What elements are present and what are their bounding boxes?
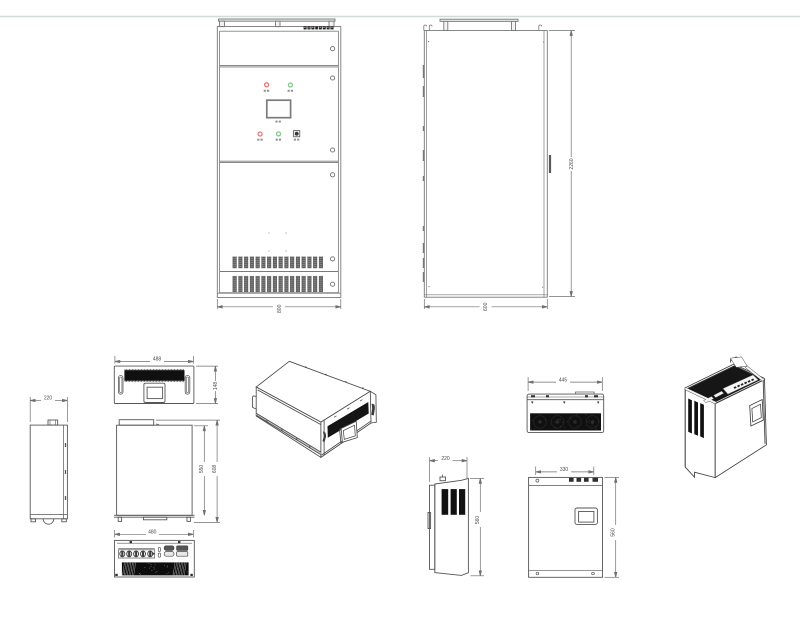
svg-text:560: 560 — [611, 528, 617, 537]
svg-text:148: 148 — [213, 382, 219, 391]
svg-text:600: 600 — [483, 302, 489, 311]
svg-text:220: 220 — [44, 396, 53, 402]
svg-text:220: 220 — [441, 456, 450, 462]
svg-text:330: 330 — [560, 467, 569, 473]
svg-text:800: 800 — [277, 304, 283, 313]
svg-text:488: 488 — [153, 357, 162, 363]
svg-text:480: 480 — [148, 530, 157, 536]
svg-text:550: 550 — [199, 465, 205, 474]
svg-text:2260: 2260 — [569, 158, 575, 169]
svg-text:608: 608 — [212, 465, 218, 474]
svg-text:560: 560 — [475, 516, 481, 525]
svg-text:445: 445 — [559, 377, 568, 383]
